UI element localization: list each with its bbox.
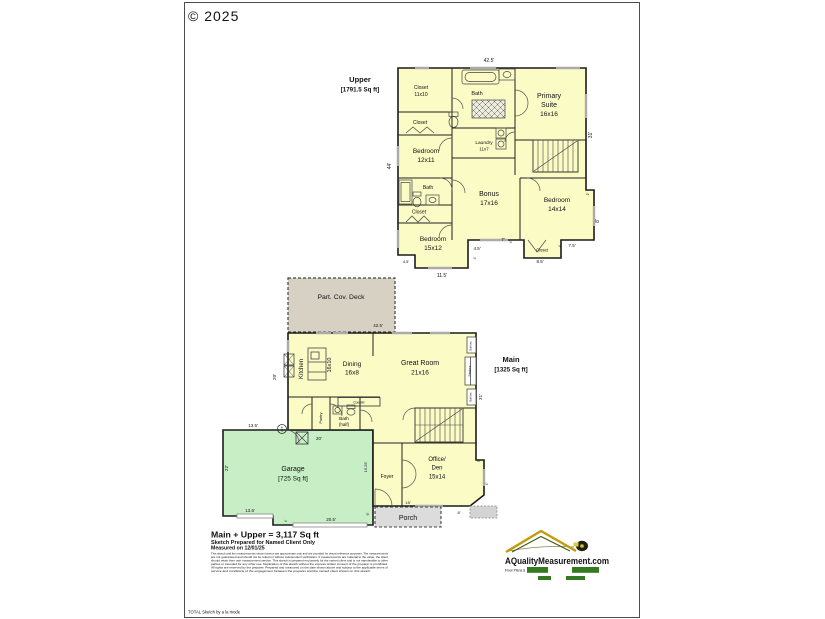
dim-upper-right-top: 31' [588,132,594,139]
dim-garage-bottom: 20.5' [326,517,336,522]
dim-upper-bottom-right: 7.5' [568,243,575,248]
room-label-dining: Dining [343,361,362,368]
dim-upper-bottom-left: 11.5' [437,273,447,279]
dim-main-left: 20' [272,374,277,380]
dim-garage-attic: 20' [316,436,322,441]
logo-company-name: AQualityMeasurement.com [505,556,609,566]
dim-office-step-b: 4' [485,482,489,485]
tape-measure-hub [580,544,584,548]
logo-badge-3 [538,576,551,580]
upper-area: [1791.5 Sq ft] [341,87,380,94]
dim-deck: 42.5' [373,323,383,328]
room-label-kitchen: Kitchen [299,359,305,379]
disclaimer-line-6: service and conditions of the engagement… [211,569,371,573]
dim-upper-top: 42.5' [484,58,495,64]
dim-garage-left: 22' [224,465,229,471]
dim-upper-bottom-right-tick: 4' [558,244,562,247]
logo-tagline: Floor Plans & [505,569,526,573]
sketch-page: © 2025 [0,0,825,619]
room-label-office-1: Office/ [428,457,446,463]
dim-main-bottom-right: 8' [458,510,461,515]
room-label-closet-d: Closet [536,248,549,253]
dim-upper-mid-b: 7' [501,237,505,242]
garage-note: 1.75' [280,426,284,432]
label-fireplace: Fireplace [468,365,472,376]
room-label-closet-c: Closet [412,210,427,216]
logo-badge-4 [566,576,585,580]
dim-garage-right-small: 6' [366,512,370,515]
garage-door [293,523,367,527]
room-label-laundry: Laundry [475,140,493,146]
upper-title: Upper [349,75,371,84]
room-size-bonus: 17x16 [480,200,498,207]
room-label-porch: Porch [399,515,417,522]
logo-badge-2 [572,567,599,573]
dim-upper-mid-a-tick: 4' [473,256,477,259]
dim-upper-right-step: 2' [586,192,590,195]
room-label-bath2: Bath [423,185,434,191]
room-size-primary: 16x16 [540,111,558,118]
room-size-great-room: 21x16 [411,370,429,377]
dim-garage-bottom-left: 13.5' [245,508,255,513]
dim-upper-notch: 4.5' [403,259,410,264]
room-label-pantry: Pantry [319,412,323,423]
room-label-closet-11x10: Closet [414,85,429,91]
dim-porch: 15' [405,500,410,505]
label-built-ins-bottom: Built-ins [469,392,473,402]
dim-upper-mid-a: 4.5' [473,246,480,251]
copyright-watermark: © 2025 [188,8,239,24]
room-label-office-2: Den [431,466,442,472]
dim-upper-left: 44' [387,163,393,170]
sketch-canvas: © 2025 [0,0,825,619]
dim-garage-right: 15.25' [363,461,368,472]
room-label-half-bath-2: (half) [339,422,350,427]
garage-window [237,514,273,518]
dim-office-step-a: 3' [477,459,481,462]
room-label-foyer: Foyer [381,474,394,480]
main-area: [1325 Sq ft] [494,367,527,374]
dim-upper-right-bottom: 8' [595,219,601,223]
dim-garage-top: 13.5' [248,423,258,428]
room-size-laundry: 11x7 [479,147,489,152]
room-label-garage: Garage [281,466,304,473]
dim-main-right: 31' [478,394,483,400]
room-size-bedroom-12x11: 12x11 [417,157,435,164]
stoop [470,506,497,518]
room-size-garage: [725 Sq ft] [278,476,308,483]
room-label-bath: Bath [471,91,482,97]
deck-label: Part. Cov. Deck [317,294,365,301]
dim-garage-bottom-tick: 4' [284,519,288,522]
room-label-great-room: Great Room [401,360,439,367]
label-counter: Counter [353,401,365,405]
room-label-bedroom-12x11: Bedroom [413,148,439,155]
room-label-primary-2: Suite [541,102,557,109]
label-built-ins-top: Built-ins [469,341,473,351]
room-label-bedroom-15x12: Bedroom [420,236,446,243]
room-size-office: 15x14 [429,475,446,481]
dim-upper-mid-b-tick: 4' [509,240,513,243]
room-label-bonus: Bonus [479,191,499,198]
room-label-closet-b: Closet [413,120,428,126]
room-size-closet-11x10: 11x10 [414,92,427,98]
room-label-primary-1: Primary [537,93,562,100]
software-branding: TOTAL Sketch by a la mode [188,610,241,615]
logo-badge-1 [527,567,548,573]
shower [472,100,505,118]
room-size-bedroom-15x12: 15x12 [424,245,442,252]
total-area-line: Main + Upper = 3,117 Sq ft [211,530,319,540]
room-size-dining: 16x8 [345,370,359,377]
tape-measure-tab [574,543,579,547]
room-label-bedroom-14x14: Bedroom [544,197,570,204]
dim-upper-closet-width: 8.5' [536,259,543,264]
main-title: Main [502,355,520,364]
room-size-kitchen: 16x10 [327,358,333,373]
room-size-bedroom-14x14: 14x14 [548,206,566,213]
